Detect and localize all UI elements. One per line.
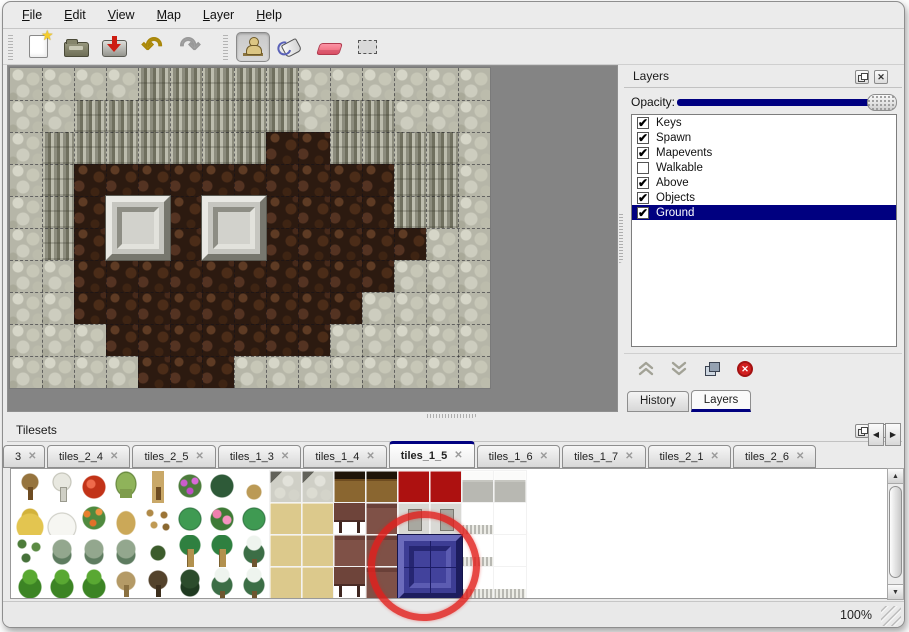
splitter-grip <box>427 414 477 418</box>
map-tile-scaly-stone <box>42 292 74 324</box>
tab-close-icon[interactable]: ✕ <box>540 451 548 462</box>
map-tile-dark-floor <box>234 260 266 292</box>
tileset-tile-fern[interactable] <box>206 471 238 503</box>
map-tile-dark-floor <box>138 356 170 388</box>
tileset-tile-whiteFringe[interactable] <box>462 567 494 599</box>
map-tile-scaly-stone <box>42 324 74 356</box>
map-tile-dark-floor <box>298 260 330 292</box>
map-tile-dark-floor <box>170 260 202 292</box>
dock-bottom-tabs: HistoryLayers <box>627 389 753 412</box>
map-tile-cliff-wall <box>170 132 202 164</box>
layer-visibility-checkbox[interactable]: ✔ <box>637 177 649 189</box>
opacity-slider-track[interactable] <box>677 99 873 106</box>
map-tile-scaly-stone <box>458 260 490 292</box>
map-tile-cliff-wall <box>330 132 362 164</box>
map-tile-scaly-stone <box>394 260 426 292</box>
map-tile-cliff-wall <box>106 132 138 164</box>
map-tile-cliff-wall <box>234 68 266 100</box>
tileset-tile-treeSnowBare[interactable] <box>46 471 78 503</box>
toolbar-drag-handle-2[interactable] <box>223 34 228 60</box>
map-tile-dark-floor <box>330 196 362 228</box>
tileset-tab-tiles_1_4[interactable]: tiles_1_4✕ <box>303 445 386 468</box>
tileset-grid[interactable] <box>14 471 526 599</box>
map-tile-scaly-stone <box>10 292 42 324</box>
menu-view[interactable]: View <box>97 4 146 26</box>
map-tile-cliff-wall <box>202 132 234 164</box>
layer-row-above[interactable]: ✔Above <box>632 175 896 190</box>
resize-grip[interactable] <box>881 606 901 626</box>
map-tile-dark-floor <box>138 292 170 324</box>
tab-close-icon[interactable]: ✕ <box>711 451 719 462</box>
layer-row-keys[interactable]: ✔Keys <box>632 115 896 130</box>
star-icon: ★ <box>41 27 54 44</box>
map-tile-dark-floor <box>394 228 426 260</box>
map-tile-scaly-stone <box>394 356 426 388</box>
tileset-tile-maroonLeg[interactable] <box>334 567 366 599</box>
toolbar-drag-handle[interactable] <box>8 34 13 60</box>
close-icon[interactable]: ✕ <box>874 70 888 84</box>
map-tile-scaly-stone <box>10 324 42 356</box>
map-tile-dark-floor <box>298 132 330 164</box>
map-tile-dark-floor <box>362 196 394 228</box>
map-tile-scaly-stone <box>330 68 362 100</box>
duplicate-layer-button[interactable] <box>702 360 722 378</box>
map-canvas[interactable] <box>10 68 490 388</box>
tileset-vertical-scrollbar[interactable]: ▲ ▼ <box>887 468 904 600</box>
save-map-button[interactable] <box>97 32 131 62</box>
tab-close-icon[interactable]: ✕ <box>796 451 804 462</box>
map-tile-dark-floor <box>362 260 394 292</box>
map-tile-cliff-wall <box>170 100 202 132</box>
menu-map[interactable]: Map <box>146 4 192 26</box>
map-tile-scaly-stone <box>362 68 394 100</box>
undo-icon: ↶ <box>142 35 162 59</box>
tileset-tile-carpetTan[interactable] <box>270 503 302 535</box>
map-tile-cliff-wall <box>42 132 74 164</box>
map-tile-dark-floor <box>170 324 202 356</box>
map-tile-scaly-stone <box>394 68 426 100</box>
layer-row-objects[interactable]: ✔Objects <box>632 190 896 205</box>
map-tile-scaly-stone <box>234 356 266 388</box>
map-tile-scaly-stone <box>42 260 74 292</box>
dock-tab-history[interactable]: History <box>627 391 689 412</box>
map-tile-cliff-wall <box>330 100 362 132</box>
map-tile-dark-floor <box>234 292 266 324</box>
map-tile-cliff-wall <box>138 100 170 132</box>
tileset-tile-lily[interactable] <box>238 503 270 535</box>
layer-visibility-checkbox[interactable]: ✔ <box>637 117 649 129</box>
select-tool-button[interactable] <box>350 32 384 62</box>
map-tile-scaly-stone <box>298 356 330 388</box>
map-tile-scaly-stone <box>458 324 490 356</box>
tileset-tile-maroon[interactable] <box>366 535 398 567</box>
tileset-tile-bushPurple[interactable] <box>174 471 206 503</box>
map-tile-dark-floor <box>202 324 234 356</box>
map-tile-scaly-stone <box>394 100 426 132</box>
map-tile-dark-floor <box>298 228 330 260</box>
map-tile-scaly-stone <box>106 68 138 100</box>
menu-layer[interactable]: Layer <box>192 4 245 26</box>
tileset-tile-treeDark[interactable] <box>174 567 206 599</box>
tileset-tile-carpetTan[interactable] <box>270 567 302 599</box>
stamp-tool-button[interactable] <box>236 32 270 62</box>
map-tile-scaly-stone <box>426 100 458 132</box>
scroll-up-icon[interactable]: ▲ <box>888 469 903 484</box>
tileset-tile-white[interactable] <box>494 535 526 567</box>
map-tile-scaly-stone <box>10 68 42 100</box>
selected-tile-highlight[interactable] <box>398 535 462 599</box>
opacity-row: Opacity: <box>624 91 902 113</box>
map-tile-scaly-stone <box>458 196 490 228</box>
map-tile-cliff-wall <box>42 228 74 260</box>
tileset-tab-tiles_2_5[interactable]: tiles_2_5✕ <box>132 445 215 468</box>
map-tile-dark-floor <box>170 196 202 228</box>
tileset-tile-bush[interactable] <box>110 535 142 567</box>
tileset-tile-snowMound[interactable] <box>46 503 78 535</box>
eraser-icon <box>316 43 343 55</box>
fill-tool-button[interactable] <box>274 32 308 62</box>
map-tile-cliff-wall <box>362 132 394 164</box>
tileset-tile-wood[interactable] <box>366 471 398 503</box>
layer-visibility-checkbox[interactable]: ✔ <box>637 207 649 219</box>
tileset-tile-treeGreen[interactable] <box>46 567 78 599</box>
map-tile-scaly-stone <box>10 228 42 260</box>
map-tile-scaly-stone <box>426 228 458 260</box>
map-tile-cliff-wall <box>394 164 426 196</box>
tileset-tile-hay[interactable] <box>14 503 46 535</box>
map-tile-dark-floor <box>202 292 234 324</box>
map-tile-scaly-stone <box>426 356 458 388</box>
tileset-tile-bush[interactable] <box>78 535 110 567</box>
app-window: FileEditViewMapLayerHelp ★↶↷ Layers ✕ Op… <box>2 1 905 628</box>
map-tile-dark-floor <box>298 164 330 196</box>
map-tile-cliff-wall <box>74 132 106 164</box>
map-tile-dark-floor <box>298 196 330 228</box>
stamp-icon <box>243 37 263 56</box>
map-tile-scaly-stone <box>458 356 490 388</box>
layer-name: Ground <box>656 207 694 219</box>
redo-button[interactable]: ↷ <box>173 32 207 62</box>
scroll-down-icon[interactable]: ▼ <box>888 584 903 599</box>
map-tile-dark-floor <box>330 292 362 324</box>
map-tile-scaly-stone <box>426 292 458 324</box>
map-tile-dark-floor <box>138 164 170 196</box>
tilesets-panel-titlebar: Tilesets ✕ <box>7 419 902 442</box>
map-tile-dark-floor <box>330 228 362 260</box>
map-tile-dark-floor <box>74 292 106 324</box>
layer-name: Above <box>656 177 689 189</box>
toolbar: ★↶↷ <box>3 29 904 65</box>
map-tile-dark-floor <box>266 292 298 324</box>
layers-panel: Layers ✕ Opacity: ✔Keys✔Spawn✔MapeventsW… <box>624 65 902 412</box>
tileset-tile-treeDead[interactable] <box>110 567 142 599</box>
tilesets-panel-title: Tilesets <box>16 423 57 437</box>
map-tile-cliff-wall <box>394 196 426 228</box>
tileset-tile-trunk[interactable] <box>142 471 174 503</box>
delete-layer-button[interactable]: ✕ <box>735 360 755 378</box>
map-tile-scaly-stone <box>74 324 106 356</box>
tileset-tile-treeGreen[interactable] <box>14 567 46 599</box>
map-tile-cliff-wall <box>266 68 298 100</box>
layer-action-buttons: ✕ <box>624 353 902 383</box>
map-tile-scaly-stone <box>330 356 362 388</box>
map-tile-cliff-wall <box>266 100 298 132</box>
map-tile-dark-floor <box>170 164 202 196</box>
new-map-button[interactable]: ★ <box>21 32 55 62</box>
menu-help[interactable]: Help <box>245 4 293 26</box>
tileset-tab-3[interactable]: 3✕ <box>3 445 45 468</box>
tileset-tile-leaves[interactable] <box>142 503 174 535</box>
tileset-tile-pineSnow[interactable] <box>206 567 238 599</box>
tileset-tile-maroon[interactable] <box>366 567 398 599</box>
tileset-tile-carpetRed[interactable] <box>430 471 462 503</box>
tileset-tile-wood[interactable] <box>334 471 366 503</box>
layer-visibility-checkbox[interactable]: ✔ <box>637 132 649 144</box>
dock-tab-layers[interactable]: Layers <box>691 390 752 412</box>
map-tile-dark-floor <box>106 292 138 324</box>
tileset-tile-whiteFringe[interactable] <box>462 503 494 535</box>
map-tile-dark-floor <box>74 164 106 196</box>
tab-close-icon[interactable]: ✕ <box>281 451 289 462</box>
map-tile-cliff-wall <box>74 100 106 132</box>
open-map-button[interactable] <box>59 32 93 62</box>
marquee-selection-icon <box>358 40 377 54</box>
map-tile-scaly-stone <box>458 164 490 196</box>
map-tile-scaly-stone <box>458 132 490 164</box>
map-object-block <box>106 196 170 260</box>
map-tile-scaly-stone <box>74 68 106 100</box>
open-folder-icon <box>64 42 89 57</box>
scrollbar-thumb[interactable] <box>889 486 902 578</box>
map-tile-scaly-stone <box>330 324 362 356</box>
map-tile-cliff-wall <box>362 100 394 132</box>
tileset-tile-maroon[interactable] <box>334 535 366 567</box>
tileset-tile-sprigDark[interactable] <box>142 535 174 567</box>
layer-row-ground[interactable]: ✔Ground <box>632 205 896 220</box>
tileset-tab-tiles_2_1[interactable]: tiles_2_1✕ <box>648 445 731 468</box>
map-tile-dark-floor <box>74 260 106 292</box>
tileset-tile-pineSnow[interactable] <box>238 567 270 599</box>
map-tile-scaly-stone <box>426 324 458 356</box>
tileset-tile-sprigs[interactable] <box>14 535 46 567</box>
tileset-tab-tiles_1_6[interactable]: tiles_1_6✕ <box>477 445 560 468</box>
map-tile-scaly-stone <box>42 100 74 132</box>
tileset-tile-lily[interactable] <box>174 503 206 535</box>
map-tile-scaly-stone <box>298 100 330 132</box>
map-tile-dark-floor <box>138 260 170 292</box>
map-tile-dark-floor <box>266 196 298 228</box>
tileset-tile-cobble[interactable] <box>302 471 334 503</box>
map-tile-scaly-stone <box>458 68 490 100</box>
map-tile-scaly-stone <box>362 356 394 388</box>
tileset-tile-carpetTan[interactable] <box>302 567 334 599</box>
tab-close-icon[interactable]: ✕ <box>366 451 374 462</box>
eraser-tool-button[interactable] <box>312 32 346 62</box>
menu-bar: FileEditViewMapLayerHelp <box>3 2 904 29</box>
map-tile-cliff-wall <box>234 100 266 132</box>
tileset-tile-carpetTan[interactable] <box>270 535 302 567</box>
map-tile-dark-floor <box>330 164 362 196</box>
tileset-tab-tiles_2_6[interactable]: tiles_2_6✕ <box>733 445 816 468</box>
splitter-grip <box>619 213 623 263</box>
map-tile-scaly-stone <box>10 132 42 164</box>
tab-close-icon[interactable]: ✕ <box>195 451 203 462</box>
map-tile-cliff-wall <box>234 132 266 164</box>
map-tile-cliff-wall <box>106 100 138 132</box>
tileset-tile-bush[interactable] <box>46 535 78 567</box>
tileset-tile-stump[interactable] <box>110 471 142 503</box>
tileset-tab-bar: 3✕tiles_2_4✕tiles_2_5✕tiles_1_3✕tiles_1_… <box>7 441 902 468</box>
tileset-tile-carpetRed[interactable] <box>398 471 430 503</box>
tab-close-icon[interactable]: ✕ <box>110 451 118 462</box>
undo-button[interactable]: ↶ <box>135 32 169 62</box>
map-tile-scaly-stone <box>362 324 394 356</box>
map-tile-dark-floor <box>234 324 266 356</box>
tilesets-panel: Tilesets ✕ 3✕tiles_2_4✕tiles_2_5✕tiles_1… <box>7 419 902 600</box>
opacity-label: Opacity: <box>631 95 675 109</box>
map-tile-cliff-wall <box>426 132 458 164</box>
tileset-tab-tiles_1_7[interactable]: tiles_1_7✕ <box>562 445 645 468</box>
map-tile-scaly-stone <box>42 356 74 388</box>
map-tile-cliff-wall <box>138 132 170 164</box>
tileset-tile-treeDarkDead[interactable] <box>142 567 174 599</box>
layers-panel-title: Layers <box>633 69 669 83</box>
layer-name: Keys <box>656 117 682 129</box>
tab-close-icon[interactable]: ✕ <box>454 450 462 461</box>
map-tile-dark-floor <box>362 228 394 260</box>
map-tile-cliff-wall <box>426 196 458 228</box>
tileset-tile-flowersPink[interactable] <box>206 503 238 535</box>
map-tile-cliff-wall <box>202 100 234 132</box>
redo-icon: ↷ <box>180 35 200 59</box>
move-layer-down-button[interactable] <box>669 360 689 378</box>
map-tile-dark-floor <box>202 164 234 196</box>
tileset-tile-maroon[interactable] <box>366 503 398 535</box>
tileset-tile-cobble[interactable] <box>270 471 302 503</box>
menu-file[interactable]: File <box>11 4 53 26</box>
map-tile-scaly-stone <box>74 356 106 388</box>
tileset-tile-flowerRed[interactable] <box>78 471 110 503</box>
map-tile-scaly-stone <box>458 100 490 132</box>
save-icon <box>102 40 127 57</box>
paint-bucket-icon <box>280 38 302 58</box>
tab-close-icon[interactable]: ✕ <box>625 451 633 462</box>
layer-row-walkable[interactable]: Walkable <box>632 160 896 175</box>
map-tile-scaly-stone <box>426 260 458 292</box>
map-tile-dark-floor <box>138 324 170 356</box>
layer-row-spawn[interactable]: ✔Spawn <box>632 130 896 145</box>
tab-scroll-right-button[interactable]: ▶ <box>885 423 901 446</box>
map-tile-dark-floor <box>74 196 106 228</box>
float-window-icon[interactable] <box>855 424 869 438</box>
layer-visibility-checkbox[interactable]: ✔ <box>637 147 649 159</box>
tileset-tab-tiles_1_5[interactable]: tiles_1_5✕ <box>389 441 475 468</box>
map-tile-scaly-stone <box>298 68 330 100</box>
tileset-tile-grayTile[interactable] <box>494 471 526 503</box>
tileset-tile-flowersOrange[interactable] <box>78 503 110 535</box>
tileset-tile-palm[interactable] <box>174 535 206 567</box>
map-tile-dark-floor <box>106 164 138 196</box>
map-tile-scaly-stone <box>362 292 394 324</box>
map-tile-dark-floor <box>266 164 298 196</box>
map-tile-dark-floor <box>266 228 298 260</box>
tileset-tile-treeGreen[interactable] <box>78 567 110 599</box>
map-tile-cliff-wall <box>202 68 234 100</box>
layer-row-mapevents[interactable]: ✔Mapevents <box>632 145 896 160</box>
tileset-tile-carpetTan[interactable] <box>302 535 334 567</box>
map-tile-scaly-stone <box>458 292 490 324</box>
tileset-tile-maroonLeg[interactable] <box>334 503 366 535</box>
tileset-tile-sproutTan[interactable] <box>238 471 270 503</box>
tileset-tile-metal[interactable] <box>398 503 430 535</box>
tileset-tile-grayTile[interactable] <box>462 471 494 503</box>
tab-close-icon[interactable]: ✕ <box>28 451 36 462</box>
map-tile-scaly-stone <box>10 356 42 388</box>
menu-edit[interactable]: Edit <box>53 4 97 26</box>
float-window-icon[interactable] <box>855 70 869 84</box>
tileset-content <box>10 468 888 599</box>
map-object-block <box>202 196 266 260</box>
tileset-tile-whiteFringe[interactable] <box>462 535 494 567</box>
map-tile-dark-floor <box>330 260 362 292</box>
map-tile-scaly-stone <box>10 100 42 132</box>
screenshot-stage: FileEditViewMapLayerHelp ★↶↷ Layers ✕ Op… <box>0 0 909 632</box>
tileset-tile-pineSnow[interactable] <box>238 535 270 567</box>
map-tile-dark-floor <box>202 356 234 388</box>
layer-visibility-checkbox[interactable]: ✔ <box>637 192 649 204</box>
layer-name: Mapevents <box>656 147 712 159</box>
tileset-tile-whiteFringe[interactable] <box>494 567 526 599</box>
tileset-tile-metal[interactable] <box>430 503 462 535</box>
tab-scroll-left-button[interactable]: ◀ <box>868 423 884 446</box>
map-tile-dark-floor <box>106 260 138 292</box>
new-file-icon: ★ <box>29 35 48 58</box>
map-viewport <box>7 65 618 412</box>
layer-list[interactable]: ✔Keys✔Spawn✔MapeventsWalkable✔Above✔Obje… <box>631 114 897 347</box>
opacity-slider-handle[interactable] <box>867 94 897 111</box>
layers-panel-titlebar: Layers ✕ <box>624 65 902 88</box>
map-tile-scaly-stone <box>458 228 490 260</box>
map-tile-cliff-wall <box>42 164 74 196</box>
map-tile-dark-floor <box>234 164 266 196</box>
tileset-tile-carpetTan[interactable] <box>302 503 334 535</box>
map-tile-cliff-wall <box>170 68 202 100</box>
map-tile-scaly-stone <box>10 196 42 228</box>
tileset-tile-palm[interactable] <box>206 535 238 567</box>
map-tile-scaly-stone <box>426 68 458 100</box>
map-tile-dark-floor <box>362 164 394 196</box>
map-tile-dark-floor <box>74 228 106 260</box>
tileset-tab-tiles_2_4[interactable]: tiles_2_4✕ <box>47 445 130 468</box>
tileset-tile-treeBare[interactable] <box>14 471 46 503</box>
map-tile-dark-floor <box>170 292 202 324</box>
map-tile-cliff-wall <box>426 164 458 196</box>
map-tile-dark-floor <box>266 324 298 356</box>
tileset-tile-white[interactable] <box>494 503 526 535</box>
move-layer-up-button[interactable] <box>636 360 656 378</box>
tileset-tile-tuft[interactable] <box>110 503 142 535</box>
layer-name: Spawn <box>656 132 691 144</box>
map-tile-dark-floor <box>202 260 234 292</box>
layer-visibility-checkbox[interactable] <box>637 162 649 174</box>
layer-name: Objects <box>656 192 695 204</box>
map-tile-cliff-wall <box>138 68 170 100</box>
map-tile-dark-floor <box>266 260 298 292</box>
map-tile-scaly-stone <box>10 260 42 292</box>
tileset-tab-tiles_1_3[interactable]: tiles_1_3✕ <box>218 445 301 468</box>
duplicate-icon <box>705 362 720 375</box>
horizontal-splitter[interactable] <box>3 412 904 419</box>
